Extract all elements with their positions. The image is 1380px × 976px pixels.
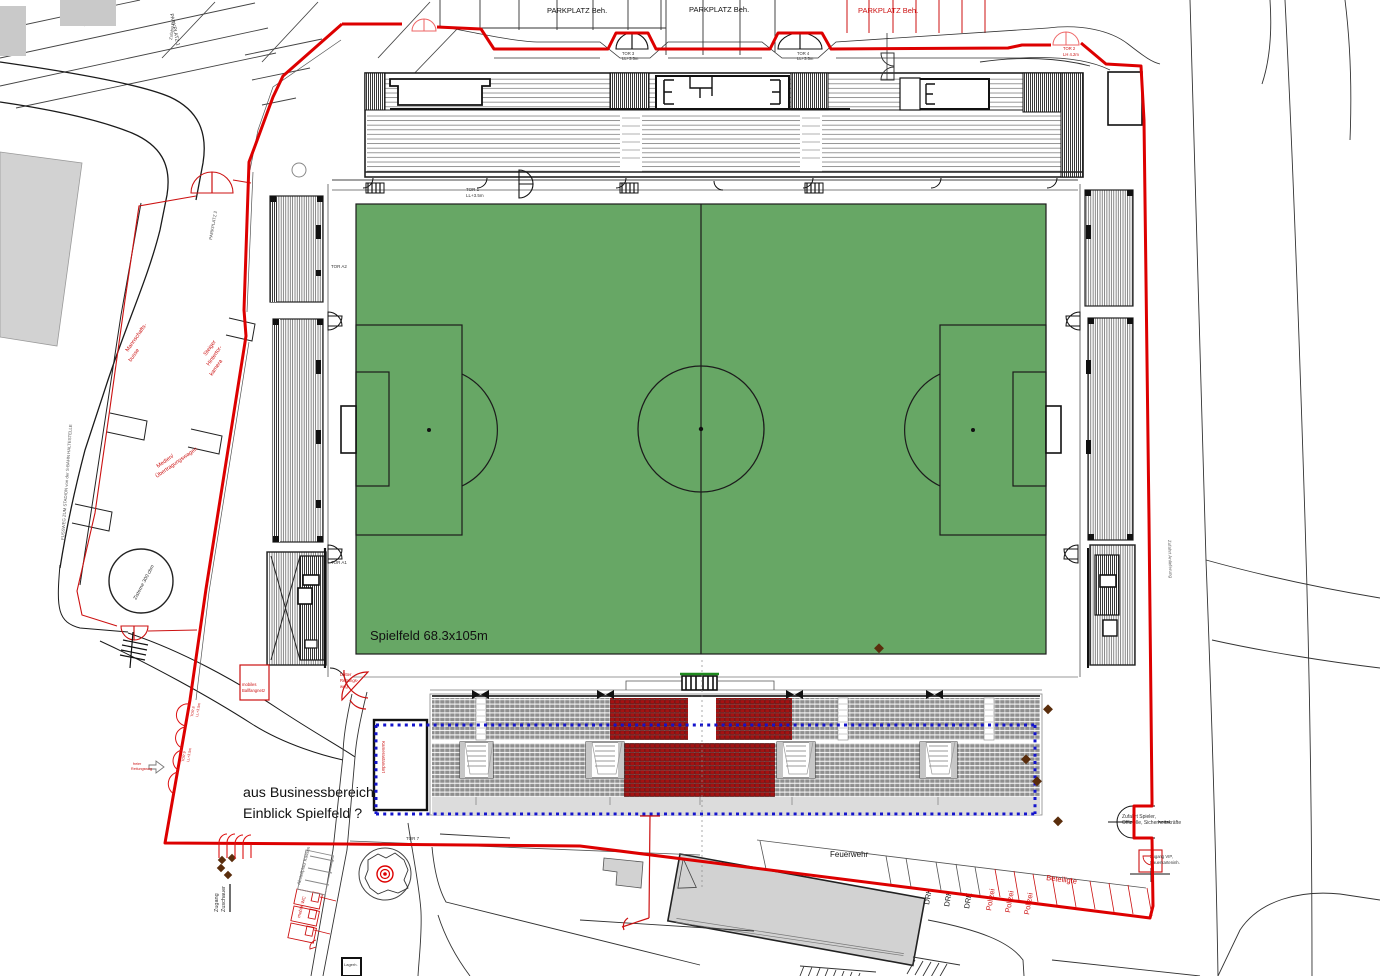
svg-text:TOR A1: TOR A1 [331,560,347,565]
svg-text:aus Businessbereich: aus Businessbereich [243,785,374,801]
svg-text:weg: weg [340,684,348,689]
svg-text:LL+3.5m: LL+3.5m [797,56,814,61]
svg-text:Kamerastandort: Kamerastandort [381,741,386,774]
svg-text:Rettungsweg: Rettungsweg [131,767,152,771]
svg-text:LH 4.2m: LH 4.2m [1063,52,1079,57]
svg-text:PARKPLATZ Beh.: PARKPLATZ Beh. [547,6,607,15]
svg-text:Dauerkarteninh.: Dauerkarteninh. [1150,860,1180,865]
svg-text:LL+3.5m: LL+3.5m [622,56,639,61]
svg-text:TOR A2: TOR A2 [331,264,347,269]
svg-text:Offizielle, Sicherheitskräfte: Offizielle, Sicherheitskräfte [1122,820,1181,826]
svg-text:Einblick Spielfeld ?: Einblick Spielfeld ? [243,806,362,822]
svg-text:TOR 7: TOR 7 [406,836,420,841]
svg-text:TOR 2: TOR 2 [1063,46,1076,51]
svg-text:Dritter: Dritter [340,672,352,677]
svg-text:TOR 1: TOR 1 [466,187,480,192]
svg-text:PARKPLATZ Beh.: PARKPLATZ Beh. [689,5,749,14]
svg-text:LL+3.5m: LL+3.5m [466,193,484,198]
svg-text:Zuschauer: Zuschauer [221,886,227,912]
svg-text:Ballfangnetz: Ballfangnetz [242,688,265,693]
svg-text:Feuerwehr: Feuerwehr [830,850,869,859]
svg-text:Zugang: Zugang [214,893,220,912]
svg-text:freier: freier [133,762,142,766]
svg-text:Spielfeld 68.3x105m: Spielfeld 68.3x105m [370,628,488,643]
svg-text:Rettungs-: Rettungs- [340,678,359,683]
svg-text:PARKPLATZ Beh.: PARKPLATZ Beh. [858,6,918,15]
svg-text:Lagerh.: Lagerh. [344,962,358,967]
svg-text:mobiles: mobiles [242,682,256,687]
